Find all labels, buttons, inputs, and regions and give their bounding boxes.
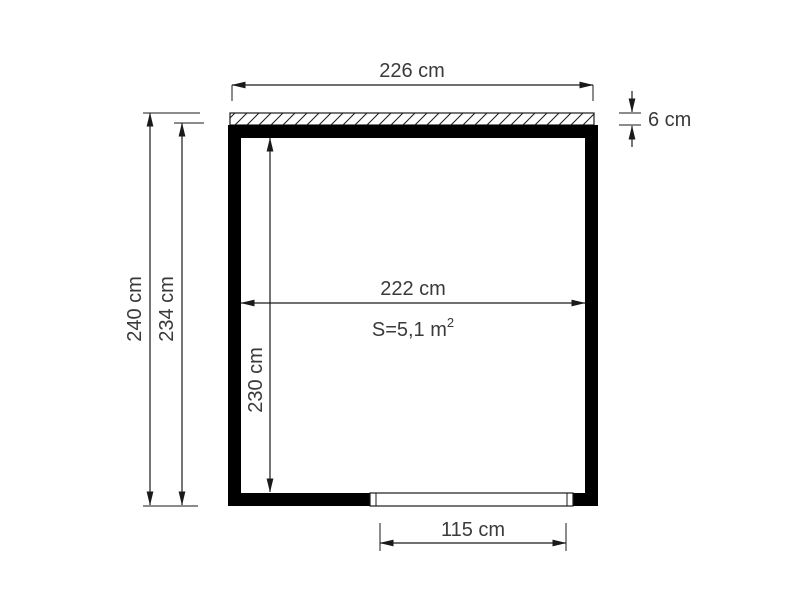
dimension-label-total-height: 240 cm	[124, 276, 146, 342]
wall-right	[585, 125, 598, 506]
dimension-label-inner-height: 230 cm	[245, 347, 267, 413]
door-opening	[370, 493, 573, 506]
wall-top	[228, 125, 598, 138]
wall-left	[228, 125, 241, 506]
area-label: S=5,1 m2	[372, 315, 454, 341]
dimension-label-wall-outer-height: 234 cm	[156, 276, 178, 342]
roof-strip-hatched-panel	[230, 113, 594, 125]
dimension-label-inner-width: 222 cm	[380, 278, 446, 300]
dimension-label-door-width: 115 cm	[441, 519, 505, 541]
dimension-roof-width: 226 cm	[232, 60, 593, 101]
area-annotation: S=5,1 m2	[372, 315, 454, 341]
dimension-roof-thickness: 6 cm	[619, 91, 691, 147]
dimension-door-width: 115 cm	[380, 519, 566, 551]
walls	[228, 125, 598, 506]
dimension-label-roof-thickness: 6 cm	[648, 109, 691, 131]
door-threshold	[370, 493, 573, 506]
roof-strip	[230, 113, 594, 125]
dimension-label-roof-width: 226 cm	[379, 60, 445, 82]
area-label-value: S=5,1 m	[372, 319, 447, 341]
area-label-superscript: 2	[447, 315, 454, 330]
dimension-inner-height: 230 cm	[245, 138, 270, 492]
floor-plan-canvas: 226 cm 6 cm 240 cm 234 cm 222 cm S=5,1 m…	[0, 0, 800, 600]
floor-plan-drawing: 226 cm 6 cm 240 cm 234 cm 222 cm S=5,1 m…	[0, 0, 800, 600]
dimension-wall-outer-height: 234 cm	[156, 123, 204, 505]
dimension-inner-width: 222 cm	[241, 278, 585, 303]
